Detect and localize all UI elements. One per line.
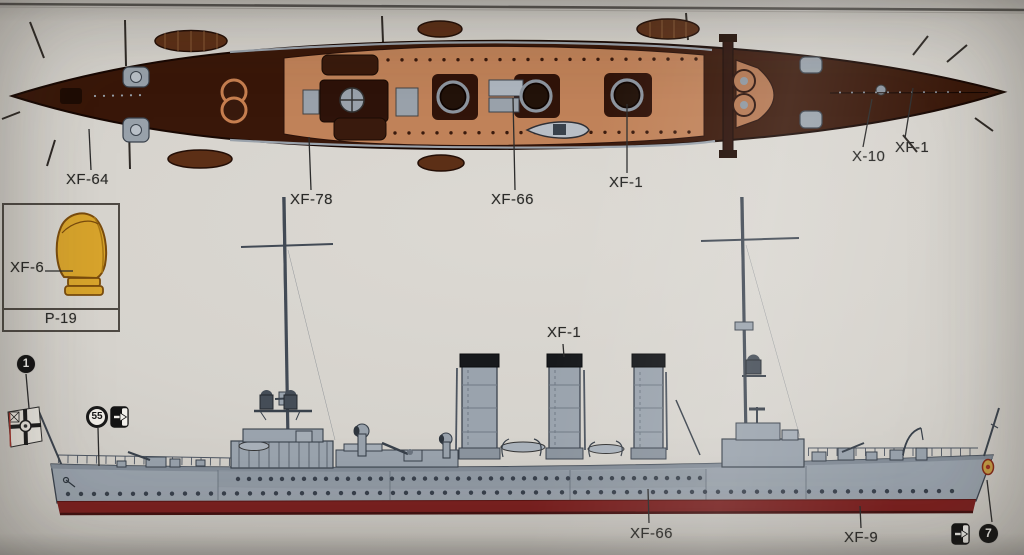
paint-label-xf1-side: XF-1 [547, 324, 581, 341]
paint-label-xf64-top: XF-64 [66, 171, 109, 188]
waterline-stripe [57, 500, 976, 515]
side-hull [51, 455, 993, 503]
decal-number-55-marker: 55 [86, 406, 108, 428]
funnel-1 [456, 354, 500, 459]
paint-label-xf9-side: XF-9 [844, 529, 878, 546]
paint-label-xf78-top: XF-78 [290, 191, 333, 208]
apply-decal-icon [951, 523, 970, 545]
paint-label-xf66-side: XF-66 [630, 525, 673, 542]
paint-label-xf1-top: XF-1 [609, 174, 643, 191]
side-view-drawing [8, 197, 999, 528]
midship-fittings [336, 424, 458, 467]
paint-label-x10-top: X-10 [852, 148, 885, 165]
ventilator-part-drawing [4, 205, 118, 308]
part-number-1-marker: 1 [17, 355, 35, 373]
paint-label-xf66-top: XF-66 [491, 191, 534, 208]
page-top-edge [0, 4, 1024, 13]
bow-flag [8, 407, 62, 466]
stern-crest-decal [983, 460, 994, 475]
mainmast [701, 197, 800, 439]
paint-label-xf6: XF-6 [10, 259, 44, 276]
instruction-sheet-photo: P-19 XF-6 XF-64 XF-78 XF-66 XF-1 X-10 XF… [0, 0, 1024, 555]
part-number-label: P-19 [4, 311, 118, 327]
inset-divider [4, 308, 118, 310]
decal-number-7-marker: 7 [979, 524, 998, 543]
paint-label-xf1-stern-top: XF-1 [895, 139, 929, 156]
funnels [456, 354, 667, 459]
funnel-3 [631, 354, 667, 459]
ship-painting-guide-drawing [0, 0, 1024, 555]
funnel-2 [546, 354, 585, 459]
midship-boats [501, 400, 700, 457]
apply-decal-icon [110, 406, 129, 428]
